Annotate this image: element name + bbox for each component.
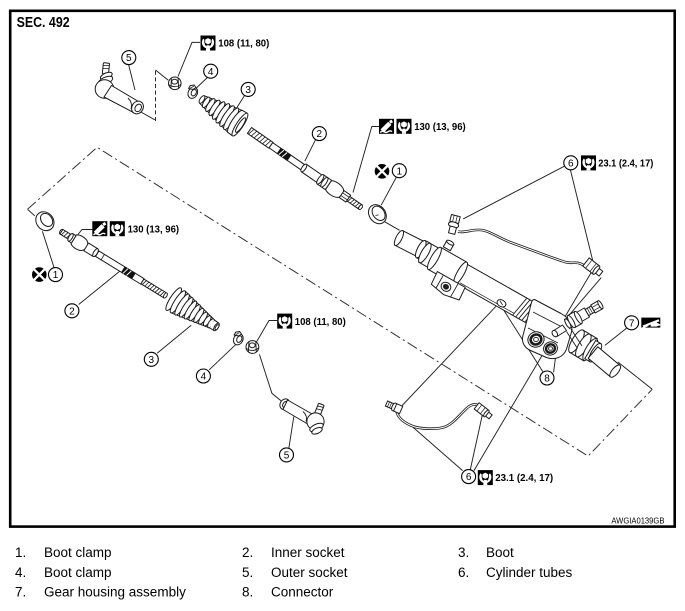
svg-text:108 (11, 80): 108 (11, 80) xyxy=(218,39,269,50)
svg-text:1: 1 xyxy=(53,270,59,281)
svg-text:7: 7 xyxy=(629,318,635,329)
svg-text:SEC. 492: SEC. 492 xyxy=(17,15,70,31)
svg-text:1: 1 xyxy=(397,166,403,177)
svg-text:Boot clamp: Boot clamp xyxy=(44,565,112,580)
svg-text:6.: 6. xyxy=(458,565,469,580)
svg-text:Gear housing assembly: Gear housing assembly xyxy=(44,585,186,600)
svg-text:AWGIA0139GB: AWGIA0139GB xyxy=(611,516,664,526)
svg-text:23.1 (2.4, 17): 23.1 (2.4, 17) xyxy=(598,159,653,170)
svg-text:Outer socket: Outer socket xyxy=(271,565,348,580)
svg-text:Boot clamp: Boot clamp xyxy=(44,545,112,560)
svg-text:Connector: Connector xyxy=(271,585,334,600)
svg-text:Cylinder tubes: Cylinder tubes xyxy=(486,565,573,580)
svg-text:2: 2 xyxy=(69,306,75,317)
svg-text:130 (13, 96): 130 (13, 96) xyxy=(414,122,466,133)
svg-text:2.: 2. xyxy=(242,545,253,560)
svg-text:4: 4 xyxy=(201,372,207,383)
svg-text:5: 5 xyxy=(284,451,290,462)
svg-text:23.1 (2.4, 17): 23.1 (2.4, 17) xyxy=(495,473,553,484)
svg-text:3: 3 xyxy=(149,355,155,366)
svg-text:5: 5 xyxy=(126,53,132,64)
svg-text:108 (11, 80): 108 (11, 80) xyxy=(295,317,346,328)
svg-text:4.: 4. xyxy=(15,565,26,580)
svg-text:6: 6 xyxy=(568,158,574,169)
svg-text:1.: 1. xyxy=(15,545,26,560)
svg-text:130 (13, 96): 130 (13, 96) xyxy=(128,224,180,235)
svg-text:4: 4 xyxy=(208,67,214,78)
svg-text:Inner socket: Inner socket xyxy=(271,545,345,560)
svg-text:8: 8 xyxy=(544,374,550,385)
svg-text:3.: 3. xyxy=(458,545,469,560)
svg-text:8.: 8. xyxy=(242,585,253,600)
svg-text:2: 2 xyxy=(317,129,323,140)
svg-text:5.: 5. xyxy=(242,565,253,580)
svg-text:7.: 7. xyxy=(15,585,26,600)
svg-text:Boot: Boot xyxy=(486,545,514,560)
svg-text:6: 6 xyxy=(466,472,472,483)
svg-text:3: 3 xyxy=(245,85,251,96)
